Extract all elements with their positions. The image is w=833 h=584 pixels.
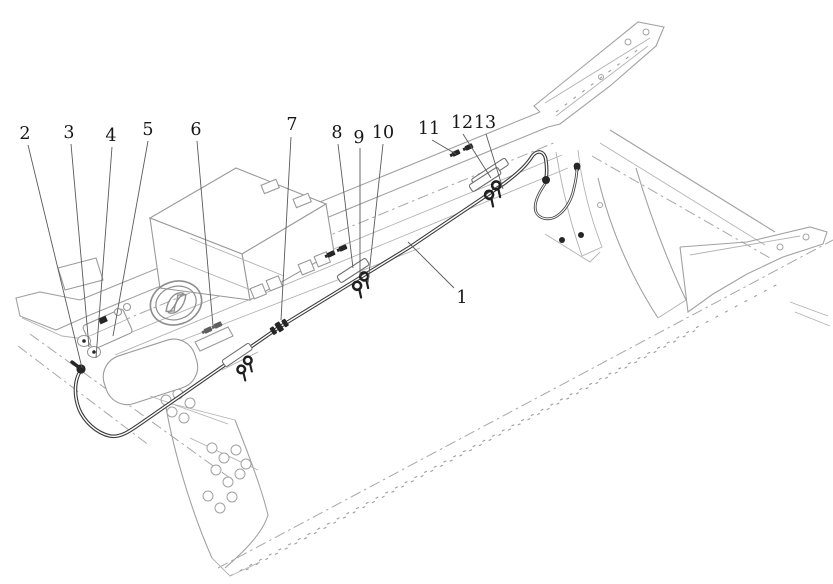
- frame-cross-brace: [545, 150, 686, 318]
- leader-line-12: [463, 134, 491, 178]
- frame-lower-rail: [212, 240, 833, 576]
- leader-line-10: [368, 144, 383, 283]
- parts-diagram-figure: 1 2 3 4 5 6 7 8 9 10 11 12 13: [0, 0, 833, 584]
- callout-label-12: 12: [451, 113, 473, 133]
- callout-label-4: 4: [105, 126, 116, 146]
- callout-label-1: 1: [456, 288, 467, 308]
- leader-line-3: [71, 144, 89, 347]
- callout-label-7: 7: [286, 115, 297, 135]
- frame-left-leg: [161, 389, 268, 568]
- frame-right-rail: [592, 130, 830, 326]
- hose-connector-bolt: [574, 163, 581, 170]
- leader-line-1: [408, 242, 454, 288]
- elbow-fitting: [72, 362, 86, 374]
- chassis-frame: [16, 22, 833, 576]
- callout-label-11: 11: [418, 119, 440, 139]
- pipe-end-fitting: [542, 176, 550, 184]
- callout-label-5: 5: [142, 120, 153, 140]
- pipe-clamp-lower: [222, 343, 265, 385]
- parts-diagram-canvas: 1 2 3 4 5 6 7 8 9 10 11 12 13: [0, 0, 833, 584]
- leader-line-11: [432, 140, 456, 154]
- callout-label-3: 3: [63, 123, 74, 143]
- callout-label-13: 13: [474, 113, 496, 133]
- flex-hose: [535, 167, 577, 219]
- frame-top-right-horn: [534, 22, 664, 127]
- valve-assembly: [58, 258, 133, 358]
- frame-upper-rail: [16, 112, 568, 478]
- callout-label-9: 9: [353, 128, 364, 148]
- callout-label-6: 6: [190, 120, 201, 140]
- callout-label-2: 2: [19, 124, 30, 144]
- callout-label-8: 8: [331, 123, 342, 143]
- callout-label-10: 10: [372, 123, 394, 143]
